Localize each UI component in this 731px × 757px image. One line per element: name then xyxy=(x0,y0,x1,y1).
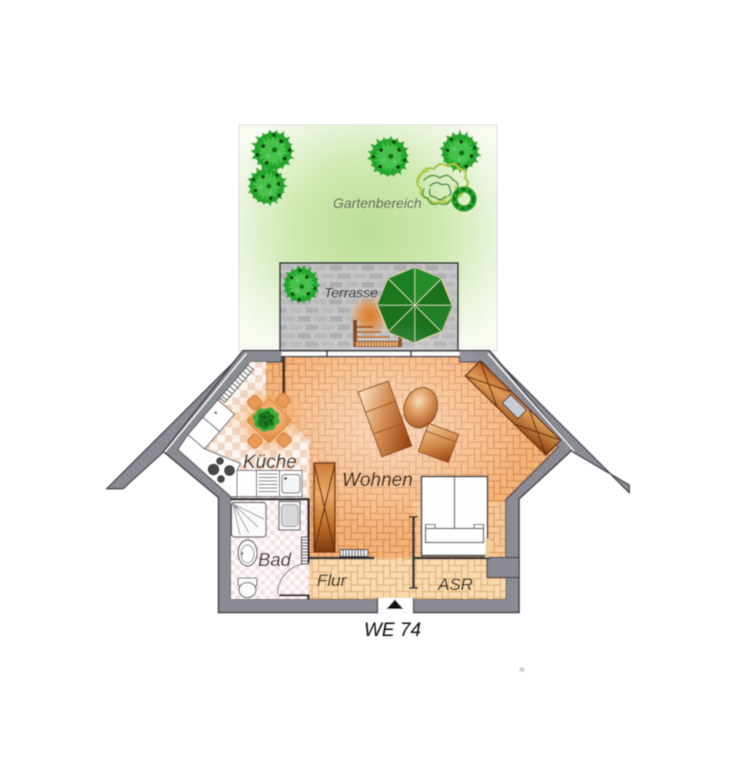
svg-text:Flur: Flur xyxy=(317,571,348,590)
svg-text:ASR: ASR xyxy=(437,575,473,594)
svg-text:Wohnen: Wohnen xyxy=(342,470,413,491)
svg-text:Bad: Bad xyxy=(258,549,292,570)
svg-text:Küche: Küche xyxy=(243,452,297,473)
svg-text:Gartenbereich: Gartenbereich xyxy=(333,195,422,211)
svg-text:WE 74: WE 74 xyxy=(364,620,421,641)
